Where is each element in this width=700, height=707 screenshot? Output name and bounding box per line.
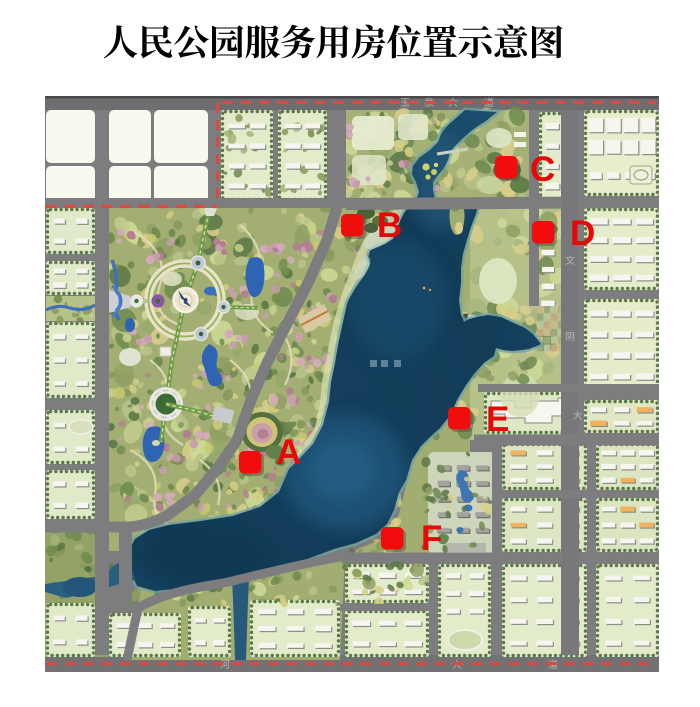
svg-text:C: C — [530, 150, 555, 189]
svg-text:B: B — [377, 206, 402, 245]
svg-text:A: A — [276, 433, 301, 472]
svg-text:F: F — [421, 519, 442, 558]
svg-text:D: D — [570, 214, 595, 253]
svg-text:E: E — [486, 400, 509, 439]
